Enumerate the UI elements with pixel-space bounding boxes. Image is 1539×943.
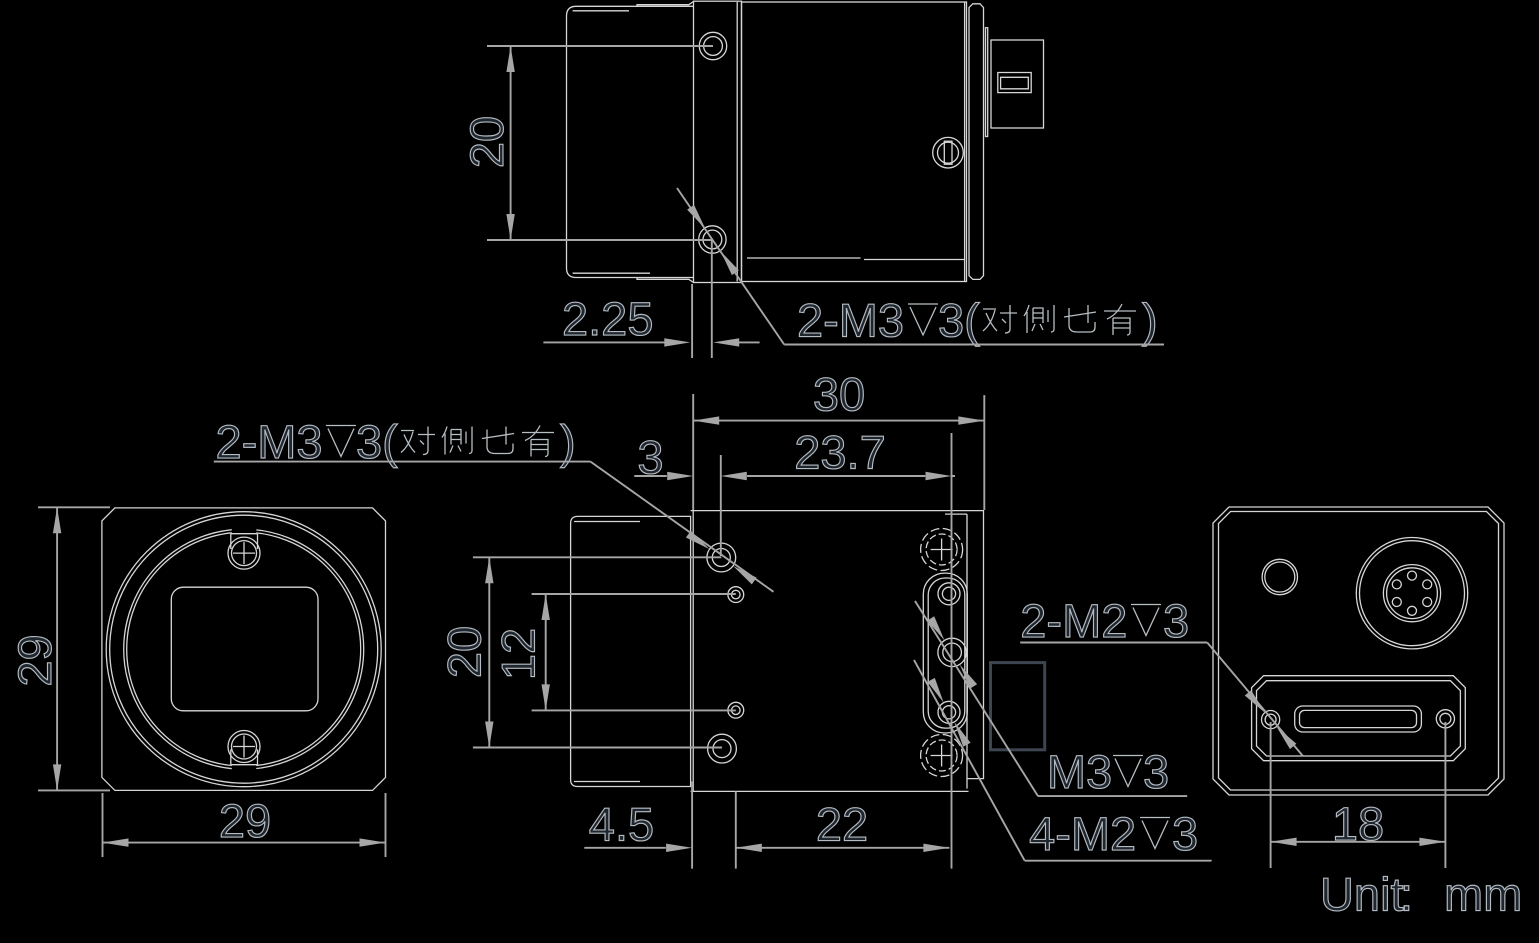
svg-text:3: 3 [1163,594,1189,647]
svg-text:2-M3: 2-M3 [215,415,322,468]
svg-text:Unit: Unit [1320,867,1404,920]
svg-text:3: 3 [1143,745,1169,798]
svg-text:22: 22 [816,797,868,850]
svg-text:12: 12 [491,628,544,680]
svg-text:30: 30 [813,367,865,420]
svg-text:18: 18 [1332,797,1384,850]
svg-text::: : [1400,867,1413,920]
svg-text:): ) [1142,293,1158,346]
svg-text:4-M2: 4-M2 [1029,807,1136,860]
svg-text:3(: 3( [938,293,980,346]
svg-text:): ) [560,415,576,468]
svg-text:29: 29 [8,634,61,686]
svg-text:2.25: 2.25 [562,292,654,345]
svg-text:M3: M3 [1047,745,1112,798]
svg-text:29: 29 [219,794,271,847]
svg-text:4.5: 4.5 [589,797,654,850]
svg-text:3: 3 [637,430,663,483]
svg-text:3: 3 [1172,807,1198,860]
svg-text:20: 20 [437,626,490,678]
svg-text:2-M3: 2-M3 [797,293,904,346]
svg-text:20: 20 [460,116,513,168]
svg-text:mm: mm [1444,867,1522,920]
svg-text:3(: 3( [356,415,398,468]
svg-text:23.7: 23.7 [794,425,886,478]
svg-text:2-M2: 2-M2 [1020,594,1127,647]
